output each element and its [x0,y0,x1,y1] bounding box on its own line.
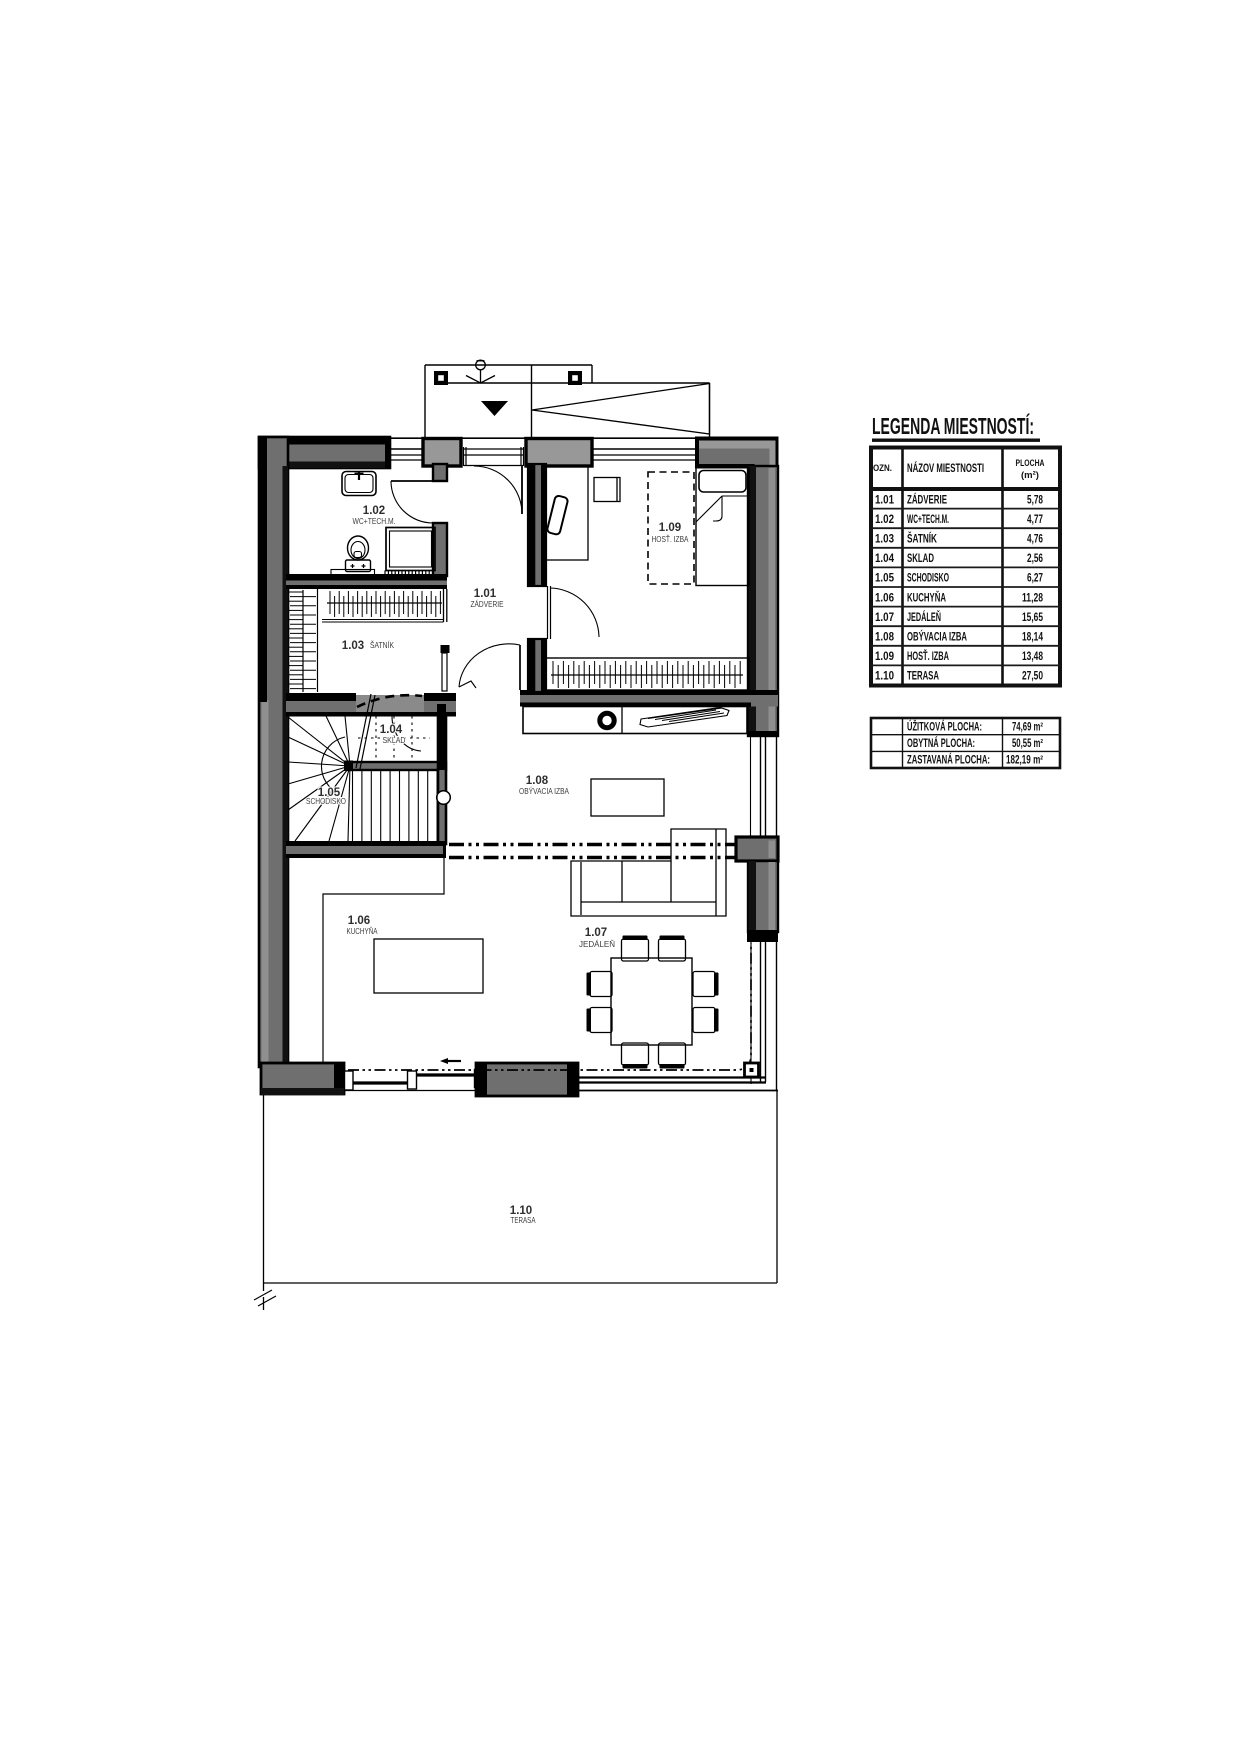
svg-text:SKLAD: SKLAD [907,553,934,565]
svg-text:11,28: 11,28 [1022,592,1043,604]
svg-text:13,48: 13,48 [1022,651,1043,663]
svg-text:OBÝVACIA IZBA: OBÝVACIA IZBA [519,786,569,796]
svg-text:1.08: 1.08 [875,632,895,644]
svg-text:1.02: 1.02 [875,514,894,526]
svg-text:ZÁDVERIE: ZÁDVERIE [907,493,947,506]
svg-text:ŠATNÍK: ŠATNÍK [907,533,937,546]
svg-text:OBÝVACIA IZBA: OBÝVACIA IZBA [907,631,967,644]
svg-text:JEDÁLEŇ: JEDÁLEŇ [907,611,941,624]
svg-text:18,14: 18,14 [1022,632,1043,644]
svg-text:2,56: 2,56 [1027,553,1043,565]
svg-text:(m²): (m²) [1021,470,1039,481]
svg-text:TERASA: TERASA [907,671,939,683]
svg-text:ZÁDVERIE: ZÁDVERIE [471,599,504,609]
svg-text:1.05: 1.05 [875,573,895,585]
svg-text:1.03: 1.03 [875,534,894,546]
svg-text:JEDÁLEŇ: JEDÁLEŇ [579,939,615,949]
svg-text:NÁZOV MIESTNOSTI: NÁZOV MIESTNOSTI [907,462,984,475]
svg-text:ŠATNÍK: ŠATNÍK [370,640,394,650]
svg-text:50,55 m²: 50,55 m² [1012,738,1043,750]
svg-text:LEGENDA MIESTNOSTÍ:: LEGENDA MIESTNOSTÍ: [872,412,1034,439]
svg-text:182,19 m²: 182,19 m² [1006,755,1043,767]
svg-text:4,77: 4,77 [1027,514,1043,526]
svg-text:1.01: 1.01 [875,494,895,506]
svg-text:1.10: 1.10 [875,671,894,683]
svg-text:HOSŤ. IZBA: HOSŤ. IZBA [907,650,949,663]
svg-text:1.07: 1.07 [585,927,607,939]
svg-text:1.06: 1.06 [875,592,894,604]
svg-text:TERASA: TERASA [511,1215,536,1225]
svg-text:SKLAD: SKLAD [383,735,406,745]
svg-text:WC+TECH.M.: WC+TECH.M. [907,514,949,526]
svg-text:KUCHYŇA: KUCHYŇA [907,591,946,604]
svg-text:OZN.: OZN. [873,463,892,474]
svg-text:6,27: 6,27 [1027,573,1043,585]
svg-text:5,78: 5,78 [1027,494,1043,506]
svg-text:SCHODISKO: SCHODISKO [907,573,949,585]
svg-text:27,50: 27,50 [1022,671,1043,683]
svg-text:74,69 m²: 74,69 m² [1012,721,1043,733]
svg-text:SCHODISKO: SCHODISKO [306,796,346,806]
svg-text:PLOCHA: PLOCHA [1016,458,1045,469]
svg-text:1.09: 1.09 [659,522,681,534]
svg-text:KUCHYŇA: KUCHYŇA [347,926,378,936]
svg-text:1.07: 1.07 [875,612,894,624]
svg-text:15,65: 15,65 [1022,612,1043,624]
svg-text:HOSŤ. IZBA: HOSŤ. IZBA [652,534,689,544]
svg-text:4,76: 4,76 [1027,534,1043,546]
svg-text:1.09: 1.09 [875,651,894,663]
svg-text:1.04: 1.04 [875,553,895,565]
svg-text:OBYTNÁ PLOCHA:: OBYTNÁ PLOCHA: [907,737,975,750]
svg-text:ÚŽITKOVÁ PLOCHA:: ÚŽITKOVÁ PLOCHA: [907,720,982,733]
svg-text:1.03: 1.03 [342,640,364,652]
svg-text:ZASTAVANÁ PLOCHA:: ZASTAVANÁ PLOCHA: [907,754,990,767]
svg-text:WC+TECH.M.: WC+TECH.M. [353,516,396,526]
